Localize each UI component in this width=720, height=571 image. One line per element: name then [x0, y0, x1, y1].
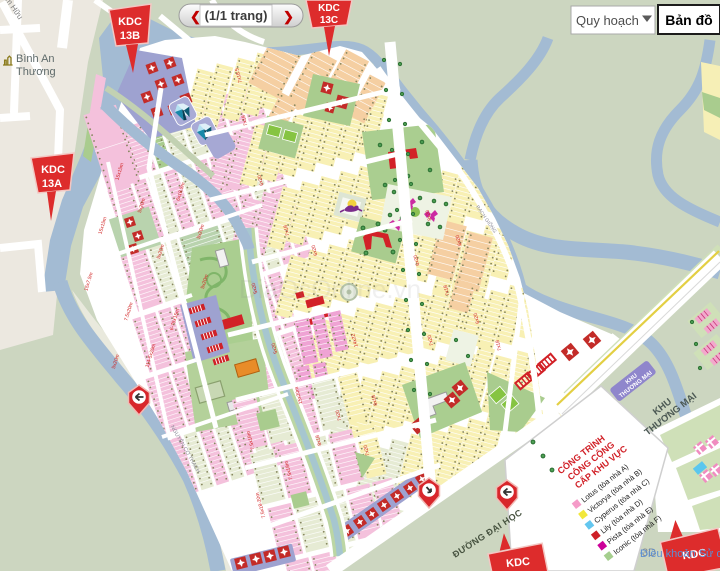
svg-text:Bình An: Bình An [16, 53, 55, 65]
svg-text:KDC: KDC [318, 3, 340, 14]
svg-text:❯: ❯ [283, 9, 294, 25]
svg-text:(1/1 trang): (1/1 trang) [205, 8, 268, 23]
svg-text:KDC: KDC [506, 556, 531, 570]
svg-text:Quy hoạch: Quy hoạch [576, 13, 639, 28]
svg-text:Thương: Thương [16, 66, 56, 78]
svg-text:KDC: KDC [118, 16, 142, 28]
svg-text:DiaOcOnline.vn: DiaOcOnline.vn [239, 274, 421, 304]
svg-text:KDC: KDC [41, 164, 65, 176]
svg-text:Điều khoản Sử d: Điều khoản Sử d [640, 548, 720, 560]
svg-text:13A: 13A [42, 178, 62, 190]
svg-text:Bản đồ: Bản đồ [665, 12, 712, 28]
svg-text:13B: 13B [120, 30, 140, 42]
svg-text:13C: 13C [320, 15, 338, 26]
svg-text:❮: ❮ [190, 9, 201, 25]
